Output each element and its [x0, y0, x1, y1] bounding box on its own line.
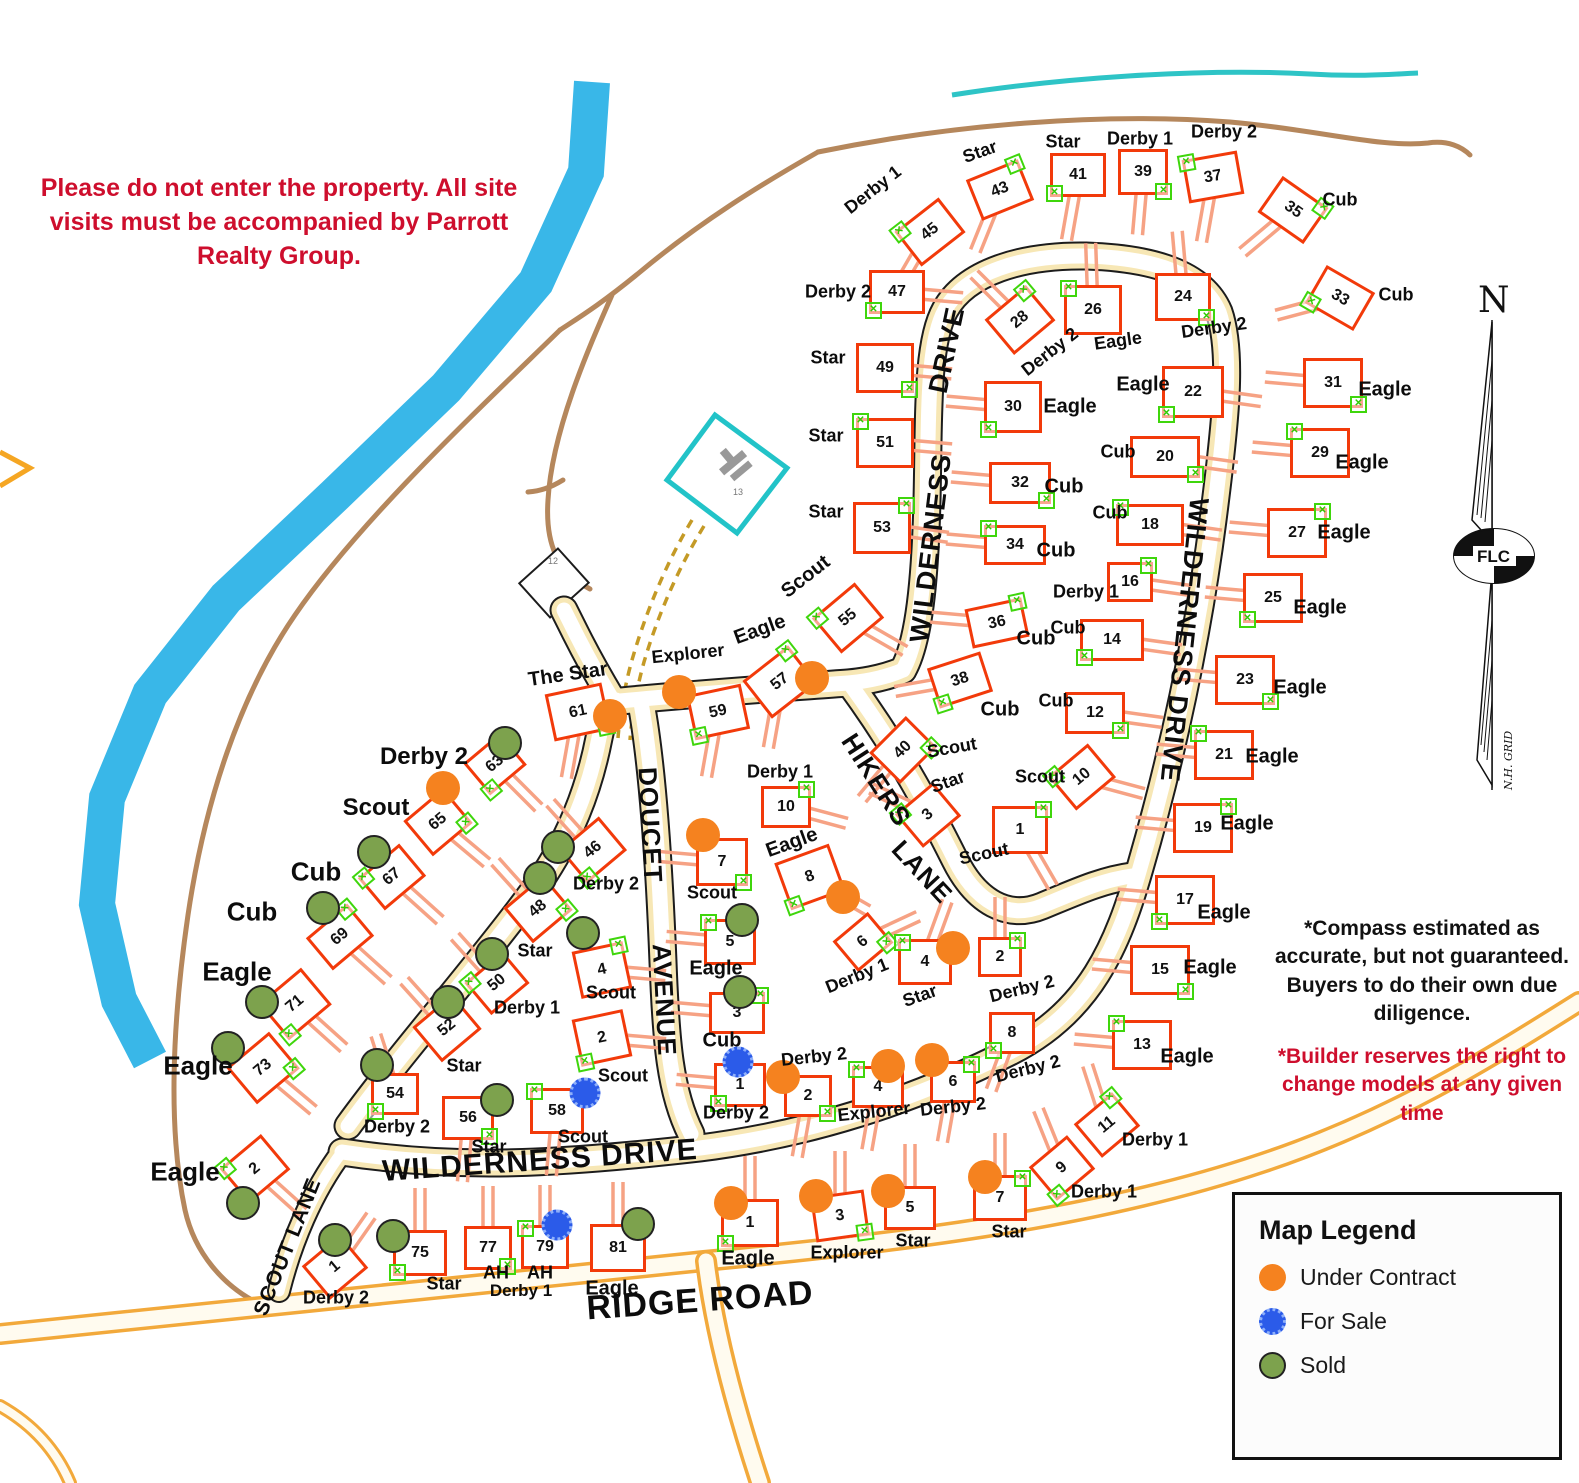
lot-31-house: 31✕	[1303, 358, 1363, 408]
lot-number: 71	[282, 991, 307, 1016]
lot-57-status-dot-uc	[795, 661, 829, 695]
lot-49-house: 49✕	[856, 343, 914, 393]
lot-67-model-label: Cub	[291, 857, 342, 888]
lot-46-model-label: Derby 2	[573, 874, 639, 895]
lot-2-model-label: Scout	[598, 1066, 648, 1087]
lot-number: 31	[1324, 374, 1342, 392]
lot-number: 40	[890, 737, 915, 762]
compass-flc-label: FLC	[1477, 547, 1510, 566]
lot-number: 7	[718, 853, 727, 871]
lot-3-model-label: Cub	[703, 1030, 742, 1053]
lot-50-model-label: Derby 1	[494, 998, 560, 1019]
surveyor-x-icon: ✕	[700, 914, 717, 931]
lot-number: 54	[386, 1085, 404, 1103]
surveyor-x-icon: ✕	[526, 1083, 543, 1100]
lot-number: 55	[835, 605, 860, 630]
lot-1-status-dot-sold	[318, 1223, 352, 1257]
lot-number: 8	[803, 867, 818, 887]
lot-19-model-label: Eagle	[1220, 813, 1273, 836]
lot-4-status-dot-sold	[566, 916, 600, 950]
lot-54-status-dot-sold	[360, 1048, 394, 1082]
lot-2-house: 2✕	[978, 937, 1022, 977]
surveyor-x-icon: ✕	[735, 874, 752, 891]
lot-15-house: 15✕	[1130, 945, 1190, 995]
lot-31-model-label: Eagle	[1358, 379, 1411, 402]
legend-label: Sold	[1300, 1352, 1346, 1379]
lot-67-status-dot-sold	[357, 835, 391, 869]
lot-29-model-label: Eagle	[1335, 452, 1388, 475]
lot-56-status-dot-sold	[480, 1083, 514, 1117]
lot-71-model-label: Eagle	[202, 957, 271, 988]
map-legend: Map Legend Under Contract For Sale Sold	[1232, 1192, 1562, 1460]
lot-7-model-label: Star	[991, 1222, 1026, 1243]
legend-item-under-contract: Under Contract	[1259, 1264, 1535, 1291]
lot-69-status-dot-sold	[306, 891, 340, 925]
lot-4-model-label: Scout	[586, 983, 636, 1004]
lot-number: 2	[596, 1028, 608, 1047]
lot-50-status-dot-sold	[475, 937, 509, 971]
lot-number: 61	[567, 701, 588, 722]
lot-5-model-label: Star	[895, 1231, 930, 1252]
lot-5-model-label: Eagle	[689, 958, 742, 981]
lot-7-status-dot-uc	[968, 1160, 1002, 1194]
surveyor-x-icon: ✕	[1046, 185, 1063, 202]
map-annotation: 12	[548, 556, 558, 566]
lot-23-model-label: Eagle	[1273, 677, 1326, 700]
lot-33-model-label: Cub	[1379, 285, 1414, 306]
lot-number: 1	[736, 1076, 745, 1094]
lot-number: 1	[746, 1214, 755, 1232]
lot-38-model-label: Cub	[981, 699, 1020, 722]
surveyor-x-icon: ✕	[517, 1220, 534, 1237]
lot-number: 4	[921, 953, 930, 971]
lot-14-model-label: Cub	[1051, 618, 1086, 639]
surveyor-x-icon: ✕	[1007, 592, 1027, 612]
surveyor-x-icon: ✕	[819, 1105, 836, 1122]
lot-2-status-dot-sold	[226, 1186, 260, 1220]
builder-note: *Builder reserves the right to change mo…	[1268, 1043, 1576, 1128]
surveyor-x-icon: ✕	[1112, 722, 1129, 739]
compass-grid-label: N.H. GRID	[1502, 731, 1515, 791]
lot-63-model-label: Derby 2	[380, 743, 468, 771]
surveyor-x-icon: ✕	[1239, 611, 1256, 628]
lot-61-status-dot-uc	[593, 699, 627, 733]
lot-number: 48	[525, 896, 550, 921]
lot-number: 25	[1264, 589, 1282, 607]
for-sale-dot-icon	[1259, 1308, 1286, 1335]
lot-1-model-label: Derby 2	[303, 1288, 369, 1309]
subdivision-site-map: N FLC N.H. GRID 45✕43✕41✕39✕37✕35✕33✕31✕…	[0, 0, 1579, 1483]
surveyor-x-icon: ✕	[1035, 801, 1052, 818]
lot-number: 28	[1007, 307, 1032, 332]
lot-number: 50	[484, 970, 509, 995]
lot-69-model-label: Cub	[227, 897, 278, 928]
lot-number: 38	[949, 669, 971, 692]
lot-number: 2	[246, 1159, 264, 1179]
lot-39-model-label: Derby 1	[1107, 129, 1173, 150]
lot-41-house: 41✕	[1050, 153, 1106, 197]
lot-number: 75	[411, 1244, 429, 1262]
surveyor-x-icon: ✕	[689, 726, 709, 746]
lot-number: 47	[888, 283, 906, 301]
lot-number: 22	[1184, 383, 1202, 401]
lot-number: 32	[1011, 474, 1029, 492]
lot-number: 20	[1156, 448, 1174, 466]
lot-3-status-dot-uc	[799, 1179, 833, 1213]
lot-number: 43	[988, 178, 1011, 201]
lot-22-house: 22✕	[1162, 366, 1224, 418]
lot-10-model-label: Scout	[1015, 767, 1065, 788]
lot-51-house: 51✕	[856, 418, 914, 468]
lot-number: 10	[777, 798, 795, 816]
surveyor-x-icon: ✕	[901, 381, 918, 398]
lot-59-status-dot-uc	[662, 675, 696, 709]
lot-number: 36	[986, 612, 1007, 633]
legend-item-sold: Sold	[1259, 1352, 1535, 1379]
compass-note: *Compass estimated as accurate, but not …	[1272, 915, 1572, 1028]
lot-number: 6	[854, 932, 872, 952]
lot-11-model-label: Derby 1	[1122, 1130, 1188, 1151]
surveyor-x-icon: ✕	[798, 781, 815, 798]
surveyor-x-icon: ✕	[1108, 1015, 1125, 1032]
lot-10-model-label: Derby 1	[747, 762, 813, 783]
lot-75-model-label: Star	[426, 1274, 461, 1295]
surveyor-x-icon: ✕	[985, 1042, 1002, 1059]
surveyor-x-icon: ✕	[855, 1223, 874, 1242]
lot-number: 46	[580, 837, 605, 862]
surveyor-x-icon: ✕	[1014, 1170, 1031, 1187]
lot-22-model-label: Eagle	[1116, 374, 1169, 397]
lot-23-house: 23✕	[1215, 655, 1275, 705]
surveyor-x-icon: ✕	[898, 497, 915, 514]
lot-75-status-dot-sold	[376, 1219, 410, 1253]
lot-number: 73	[250, 1055, 275, 1080]
lot-number: 7	[996, 1189, 1005, 1207]
compass-north-label: N	[1478, 280, 1510, 321]
lot-1-model-label: Derby 2	[703, 1103, 769, 1124]
surveyor-x-icon: ✕	[1314, 503, 1331, 520]
lot-32-model-label: Cub	[1045, 476, 1084, 499]
lot-53-house: 53✕	[853, 502, 911, 554]
lot-5-status-dot-sold	[725, 903, 759, 937]
lot-number: 53	[873, 519, 891, 537]
lot-number: 45	[917, 219, 942, 244]
lot-number: 4	[596, 960, 608, 979]
amenity-parcel	[667, 415, 787, 533]
lot-20-model-label: Cub	[1101, 442, 1136, 463]
lot-30-house: 30✕	[984, 381, 1042, 433]
lot-number: 30	[1004, 398, 1022, 416]
surveyor-x-icon: ✕	[1140, 557, 1157, 574]
lot-41-model-label: Star	[1045, 132, 1080, 153]
lot-52-model-label: Star	[446, 1056, 481, 1077]
surveyor-x-icon: ✕	[389, 1264, 406, 1281]
lot-number: 1	[326, 1257, 344, 1277]
lot-number: 29	[1311, 444, 1329, 462]
lot-number: 10	[1069, 764, 1094, 789]
lot-number: 12	[1086, 704, 1104, 722]
lot-65-status-dot-uc	[426, 771, 460, 805]
lot-16-model-label: Derby 1	[1053, 582, 1119, 603]
lot-number: 67	[379, 864, 404, 889]
lot-12-model-label: Cub	[1039, 691, 1074, 712]
lot-number: 1	[1016, 821, 1025, 839]
lot-number: 8	[1008, 1024, 1017, 1042]
lot-number: 13	[1133, 1036, 1151, 1054]
surveyor-x-icon: ✕	[1151, 913, 1168, 930]
lot-30-model-label: Eagle	[1043, 396, 1096, 419]
lot-8-house: 8✕	[989, 1012, 1035, 1054]
lot-number: 14	[1103, 631, 1121, 649]
surveyor-x-icon: ✕	[1190, 725, 1207, 742]
road-label-avenue: AVENUE	[646, 943, 683, 1057]
lot-63-status-dot-sold	[488, 726, 522, 760]
lot-35-model-label: Cub	[1323, 190, 1358, 211]
lot-36-model-label: Cub	[1017, 628, 1056, 651]
surveyor-x-icon: ✕	[609, 935, 629, 955]
lot-number: 69	[327, 924, 352, 949]
lot-81-status-dot-sold	[621, 1207, 655, 1241]
lot-46-status-dot-sold	[541, 830, 575, 864]
surveyor-x-icon: ✕	[1155, 183, 1172, 200]
road-label-doucet: DOUCET	[631, 766, 668, 883]
surveyor-x-icon: ✕	[963, 1056, 980, 1073]
lot-number: 41	[1069, 166, 1087, 184]
lot-39-house: 39✕	[1118, 149, 1168, 195]
lot-34-model-label: Cub	[1037, 540, 1076, 563]
lot-3-model-label: Explorer	[810, 1243, 883, 1264]
lot-47-model-label: Derby 2	[805, 282, 871, 303]
surveyor-x-icon: ✕	[865, 302, 882, 319]
surveyor-x-icon: ✕	[852, 413, 869, 430]
lot-number: 19	[1194, 819, 1212, 837]
surveyor-x-icon: ✕	[1009, 932, 1026, 949]
lot-number: 6	[949, 1073, 958, 1091]
stream	[952, 72, 1418, 95]
lot-6-status-dot-uc	[915, 1043, 949, 1077]
lot-number: 24	[1174, 288, 1192, 306]
lot-2-model-label: Eagle	[150, 1157, 219, 1188]
lot-51-model-label: Star	[808, 426, 843, 447]
lot-number: 15	[1151, 961, 1169, 979]
lot-1-model-label: Eagle	[721, 1248, 774, 1271]
lot-number: 2	[804, 1087, 813, 1105]
lot-number: 18	[1141, 516, 1159, 534]
lot-number: 9	[1053, 1158, 1071, 1178]
lot-1-status-dot-uc	[714, 1186, 748, 1220]
surveyor-x-icon: ✕	[1286, 423, 1303, 440]
lot-number: 23	[1236, 671, 1254, 689]
lot-4-status-dot-uc	[936, 931, 970, 965]
lot-49-model-label: Star	[810, 348, 845, 369]
lot-79-status-dot-fs	[542, 1210, 573, 1241]
lot-number: 81	[609, 1239, 627, 1257]
lot-20-house: 20✕	[1130, 436, 1200, 478]
lot-number: 49	[876, 359, 894, 377]
surveyor-x-icon: ✕	[980, 520, 997, 537]
lot-number: 57	[767, 669, 792, 694]
lot-number: 51	[876, 434, 894, 452]
lot-number: 52	[434, 1015, 459, 1040]
lot-54-model-label: Derby 2	[364, 1117, 430, 1138]
lot-52-status-dot-sold	[431, 985, 465, 1019]
lot-37-model-label: Derby 2	[1191, 122, 1257, 143]
surveyor-x-icon: ✕	[1158, 406, 1175, 423]
lot-number: 58	[548, 1102, 566, 1120]
surveyor-x-icon: ✕	[980, 421, 997, 438]
surveyor-x-icon: ✕	[1187, 466, 1204, 483]
lot-24-house: 24✕	[1155, 273, 1211, 321]
lot-number: 2	[996, 948, 1005, 966]
lot-number: 77	[479, 1239, 497, 1257]
lot-number: 5	[726, 933, 735, 951]
lot-10-house: 10✕	[761, 786, 811, 828]
sold-dot-icon	[1259, 1352, 1286, 1379]
lot-65-model-label: Scout	[343, 794, 410, 822]
legend-item-for-sale: For Sale	[1259, 1308, 1535, 1335]
lot-number: 56	[459, 1109, 477, 1127]
lot-number: 37	[1203, 167, 1224, 188]
lot-number: 17	[1176, 891, 1194, 909]
lot-32-house: 32✕	[989, 462, 1051, 504]
lot-47-house: 47✕	[869, 270, 925, 314]
lot-number: 39	[1134, 163, 1152, 181]
lot-number: 3	[919, 805, 937, 825]
lot-number: 16	[1121, 573, 1139, 591]
boundary-mark	[0, 452, 30, 486]
lot-9-model-label: Derby 1	[1071, 1182, 1137, 1203]
lot-number: 5	[906, 1199, 915, 1217]
surveyor-x-icon: ✕	[1076, 649, 1093, 666]
entry-notice: Please do not enter the property. All si…	[28, 172, 530, 273]
compass-rose: N FLC N.H. GRID	[1454, 280, 1534, 791]
legend-label: For Sale	[1300, 1308, 1387, 1335]
lot-21-model-label: Eagle	[1245, 746, 1298, 769]
legend-label: Under Contract	[1300, 1264, 1456, 1291]
lot-number: 3	[834, 1206, 845, 1225]
legend-title: Map Legend	[1259, 1215, 1535, 1246]
lot-number: 21	[1215, 746, 1233, 764]
surveyor-x-icon: ✕	[1177, 153, 1197, 173]
lot-71-status-dot-sold	[245, 985, 279, 1019]
lot-17-model-label: Eagle	[1197, 902, 1250, 925]
lot-4-status-dot-uc	[871, 1049, 905, 1083]
lot-14-house: 14✕	[1080, 619, 1144, 661]
lot-48-status-dot-sold	[523, 861, 557, 895]
lot-15-model-label: Eagle	[1183, 957, 1236, 980]
lot-7-status-dot-uc	[686, 818, 720, 852]
lot-48-model-label: Star	[517, 941, 552, 962]
lot-number: 33	[1328, 286, 1352, 310]
lot-number: 34	[1006, 536, 1024, 554]
map-annotation: Derby 1	[490, 1281, 552, 1301]
lot-27-model-label: Eagle	[1317, 522, 1370, 545]
lot-73-model-label: Eagle	[163, 1051, 232, 1082]
lot-number: 27	[1288, 524, 1306, 542]
lot-58-status-dot-fs	[570, 1078, 601, 1109]
surveyor-x-icon: ✕	[1060, 280, 1077, 297]
surveyor-x-icon: ✕	[575, 1052, 595, 1072]
lot-number: 35	[1281, 198, 1306, 223]
surveyor-x-icon: ✕	[1177, 983, 1194, 1000]
lot-13-model-label: Eagle	[1160, 1046, 1213, 1069]
lot-12-house: 12✕	[1065, 692, 1125, 734]
lot-18-model-label: Cub	[1093, 503, 1128, 524]
under-contract-dot-icon	[1259, 1264, 1286, 1291]
map-annotation: 13	[733, 487, 743, 497]
lot-8-status-dot-uc	[826, 880, 860, 914]
lot-number: 59	[707, 701, 728, 722]
lot-number: 26	[1084, 301, 1102, 319]
surveyor-x-icon: ✕	[894, 934, 911, 951]
lot-number: 65	[425, 809, 450, 834]
surveyor-x-icon: ✕	[848, 1061, 865, 1078]
lot-7-model-label: Scout	[687, 883, 737, 904]
lot-25-model-label: Eagle	[1293, 597, 1346, 620]
lot-number: 79	[536, 1238, 554, 1256]
lot-53-model-label: Star	[808, 502, 843, 523]
lot-number: 11	[1095, 1113, 1120, 1138]
lot-5-status-dot-uc	[871, 1174, 905, 1208]
